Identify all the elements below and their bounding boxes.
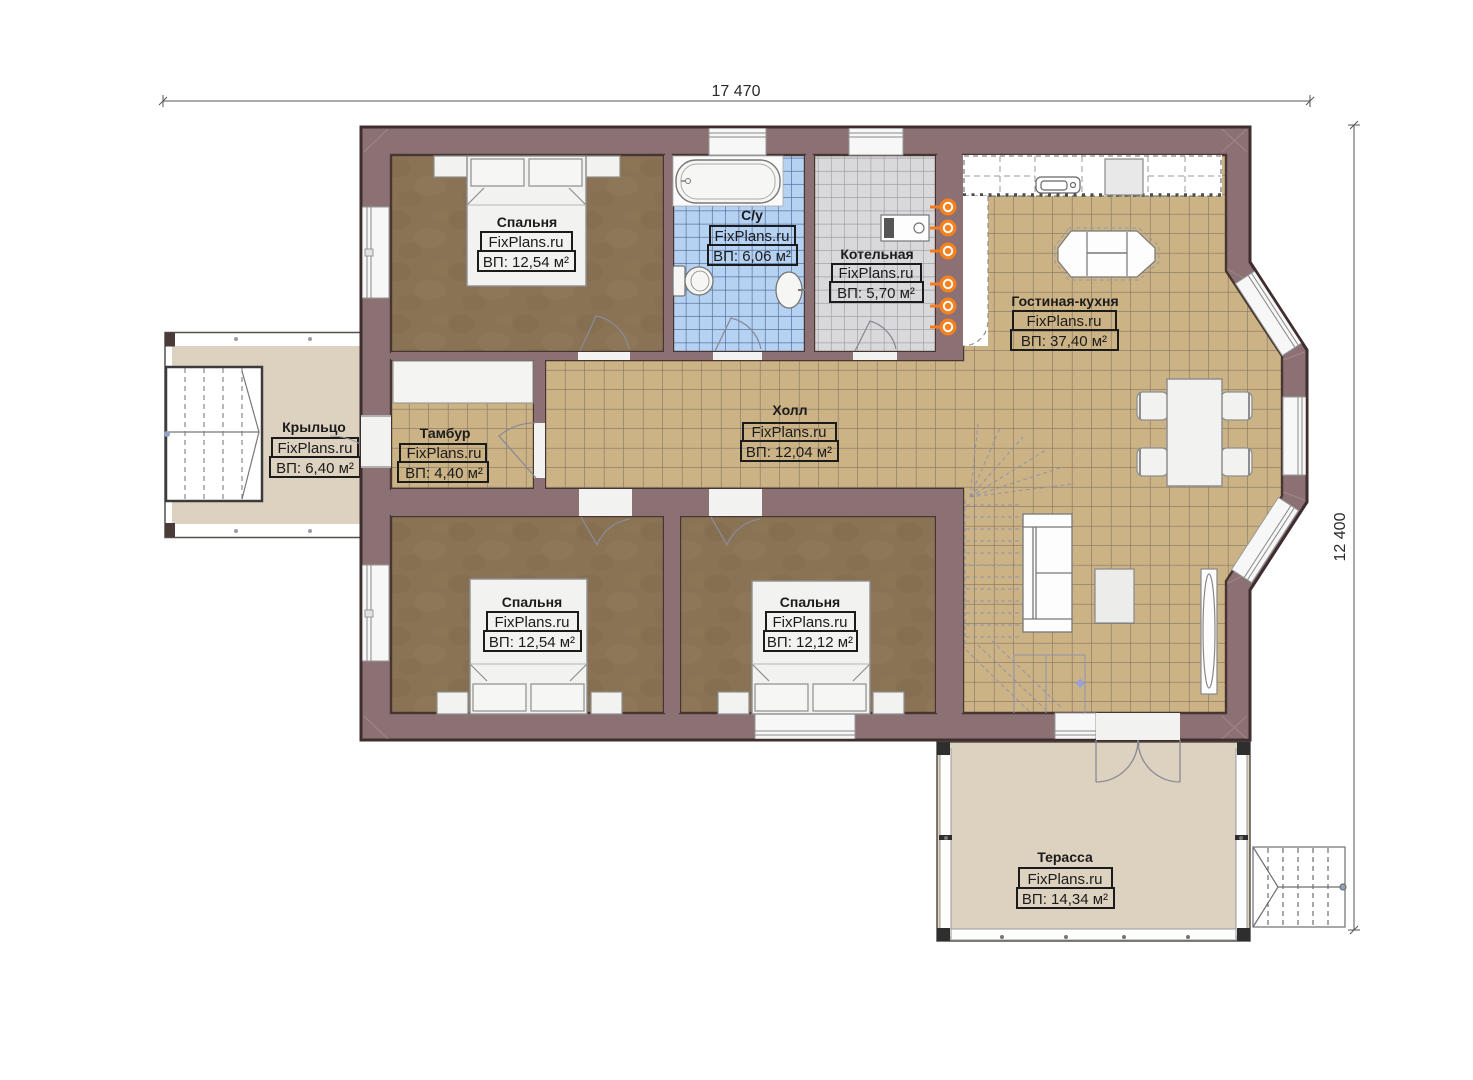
svg-text:ВП: 4,40 м²: ВП: 4,40 м² [405,465,483,482]
svg-text:FixPlans.ru: FixPlans.ru [772,614,847,631]
svg-text:ВП: 6,06 м²: ВП: 6,06 м² [713,248,791,265]
svg-text:Терасса: Терасса [1037,849,1093,865]
svg-text:Крыльцо: Крыльцо [282,419,346,435]
svg-text:FixPlans.ru: FixPlans.ru [494,614,569,631]
svg-text:ВП: 12,12 м²: ВП: 12,12 м² [767,634,853,651]
svg-text:ВП: 5,70 м²: ВП: 5,70 м² [837,285,915,302]
svg-text:ВП: 12,54 м²: ВП: 12,54 м² [489,634,575,651]
svg-text:ВП: 37,40 м²: ВП: 37,40 м² [1021,333,1107,350]
svg-text:ВП: 12,54 м²: ВП: 12,54 м² [483,254,569,271]
svg-text:Спальня: Спальня [502,594,562,610]
svg-text:ВП: 14,34 м²: ВП: 14,34 м² [1022,891,1108,908]
svg-text:12 400: 12 400 [1332,512,1349,561]
svg-text:FixPlans.ru: FixPlans.ru [714,228,789,245]
svg-text:FixPlans.ru: FixPlans.ru [488,234,563,251]
svg-text:FixPlans.ru: FixPlans.ru [277,440,352,457]
svg-text:Спальня: Спальня [497,214,557,230]
svg-text:С/у: С/у [741,207,763,223]
svg-text:Тамбур: Тамбур [420,425,471,441]
svg-text:FixPlans.ru: FixPlans.ru [406,445,481,462]
svg-text:FixPlans.ru: FixPlans.ru [838,265,913,282]
svg-text:FixPlans.ru: FixPlans.ru [751,424,826,441]
svg-text:Котельная: Котельная [840,246,913,262]
svg-text:Спальня: Спальня [780,594,840,610]
svg-text:ВП: 12,04 м²: ВП: 12,04 м² [746,444,832,461]
svg-text:FixPlans.ru: FixPlans.ru [1027,871,1102,888]
svg-text:ВП: 6,40 м²: ВП: 6,40 м² [276,460,354,477]
svg-text:Гостиная-кухня: Гостиная-кухня [1011,293,1118,309]
svg-text:Холл: Холл [772,402,807,418]
svg-text:17 470: 17 470 [712,83,761,100]
svg-text:FixPlans.ru: FixPlans.ru [1026,313,1101,330]
